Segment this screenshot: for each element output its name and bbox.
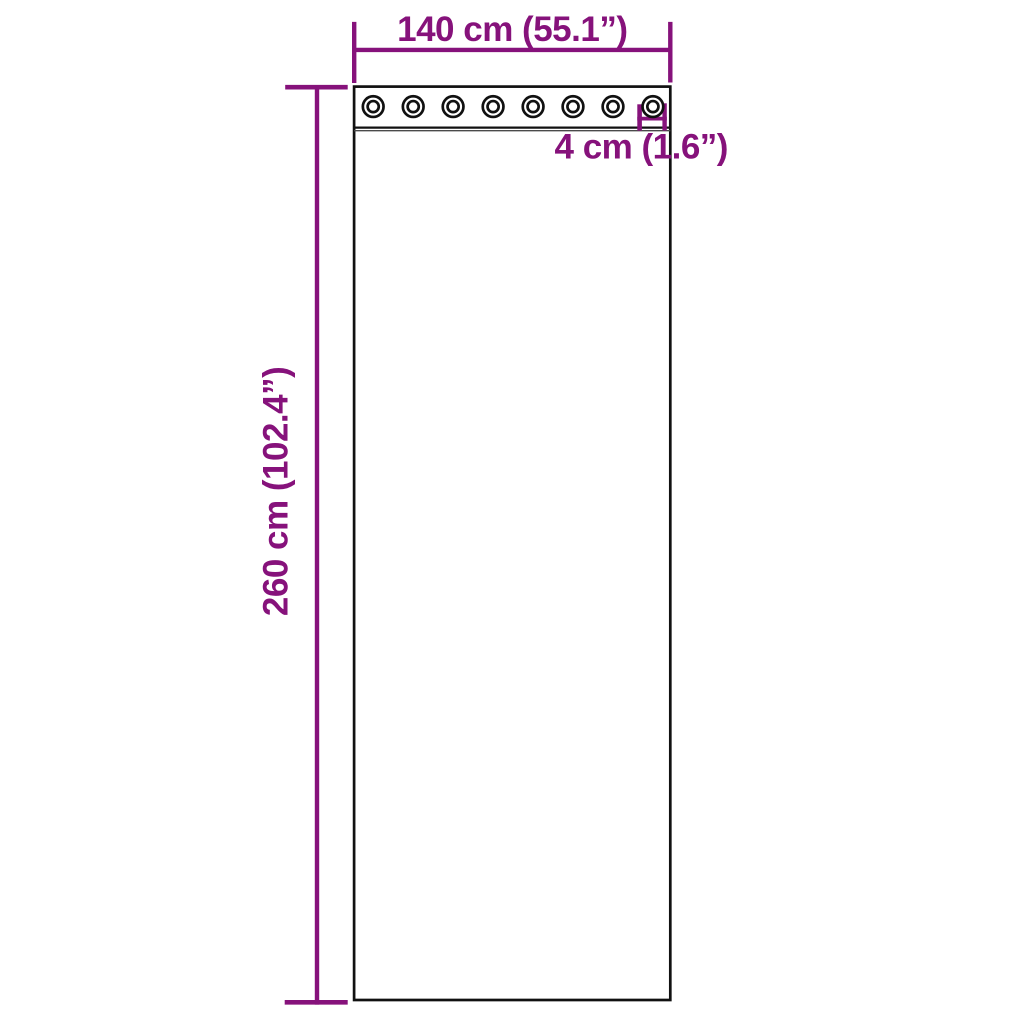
svg-text:140 cm (55.1”): 140 cm (55.1”) bbox=[397, 10, 627, 49]
svg-text:4 cm (1.6”): 4 cm (1.6”) bbox=[555, 127, 728, 166]
svg-text:260 cm (102.4”): 260 cm (102.4”) bbox=[257, 367, 296, 616]
